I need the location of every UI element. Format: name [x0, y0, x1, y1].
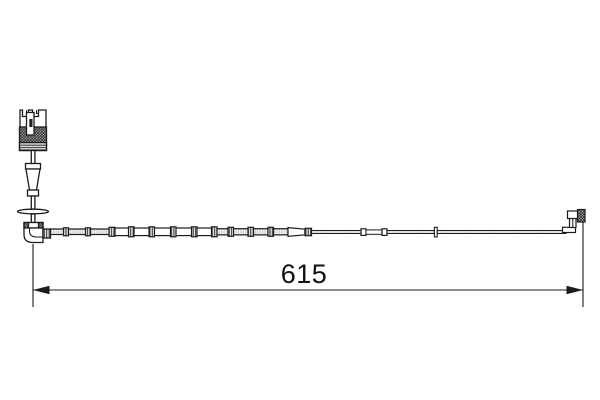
dimension-label: 615 — [278, 260, 330, 288]
taper-boot — [288, 228, 305, 237]
lead-stem-lower — [31, 196, 35, 209]
lead-stem-upper — [31, 151, 35, 165]
sensor-head-top — [568, 211, 579, 219]
boot-collar — [26, 164, 41, 170]
sensor-wire — [312, 231, 567, 234]
connector-assembly — [18, 110, 51, 243]
wire-sleeve-clip-right — [382, 229, 387, 236]
dimension-arrow-left — [33, 286, 50, 295]
cable-clip — [129, 227, 135, 237]
cable-clip — [228, 227, 234, 236]
elbow-body — [24, 228, 43, 243]
diagram-canvas: 615 — [0, 0, 600, 400]
wear-sensor-drawing — [0, 0, 600, 400]
connector-body-ribs — [20, 143, 47, 151]
rubber-boot — [26, 169, 40, 190]
wire-disc — [434, 227, 437, 237]
wire-sleeve — [366, 230, 382, 234]
taper-boot-ferrule — [305, 228, 312, 235]
elbow-outlet-ferrule — [43, 229, 51, 238]
sensor-head-pad — [578, 210, 586, 223]
cable-clip — [192, 227, 198, 237]
elbow-cap-hatch-right — [39, 223, 44, 229]
lead-stem-bottom — [31, 214, 35, 223]
wire-sleeve-clip-left — [361, 229, 366, 236]
cable-clip — [248, 227, 254, 236]
grommet-washer — [18, 209, 49, 214]
cable-clip — [149, 227, 155, 237]
cable-run — [51, 227, 567, 237]
cable-clip — [109, 227, 115, 236]
elbow-cap-hatch-left — [24, 223, 29, 229]
dimension-arrow-right — [567, 286, 584, 295]
cable-clip — [268, 227, 274, 236]
cable-clip — [212, 227, 218, 237]
cable-clip — [86, 228, 91, 236]
cable-clip — [64, 228, 69, 236]
cable-clip — [171, 227, 177, 237]
sensor-head — [563, 210, 586, 233]
boot-band — [28, 190, 39, 196]
cable-segment-a — [51, 229, 113, 235]
connector-latch-button — [29, 119, 32, 127]
